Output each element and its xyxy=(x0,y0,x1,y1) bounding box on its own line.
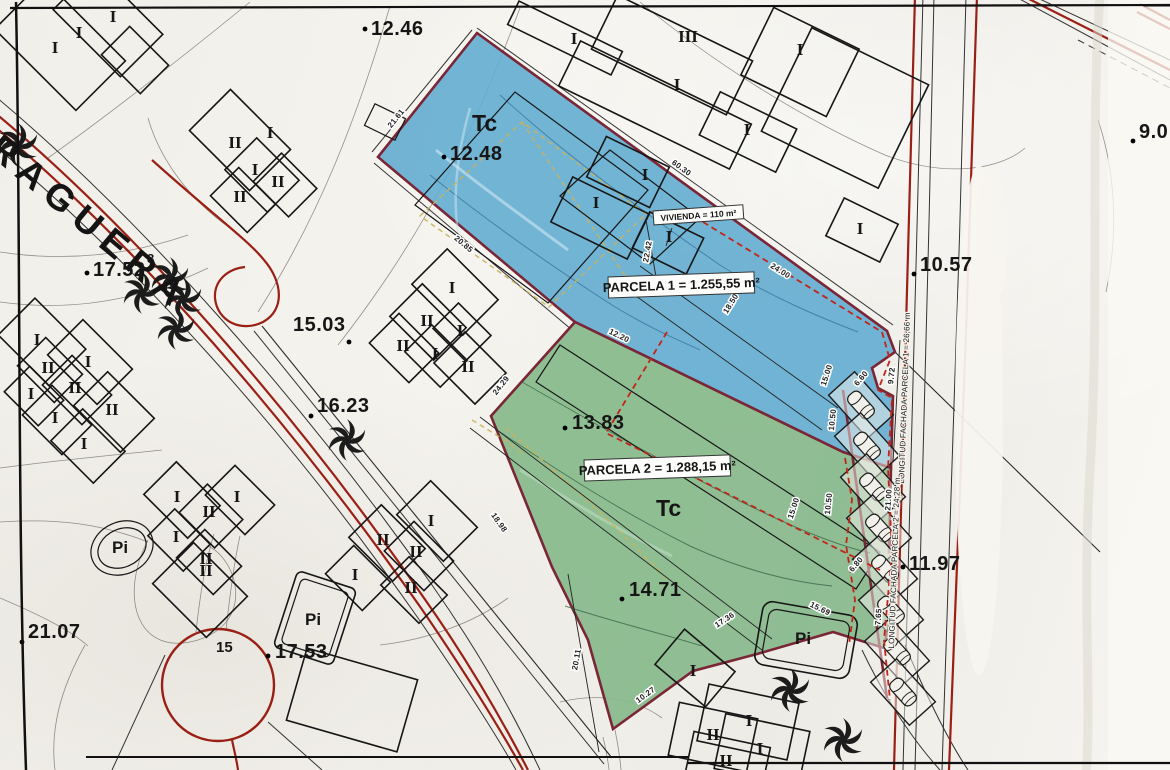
elevation-label: 17.52 xyxy=(93,259,146,281)
land-use-code: Tc xyxy=(656,495,681,521)
floors-label: I xyxy=(642,165,649,184)
building-cluster-mid xyxy=(369,249,506,404)
floors-label: II xyxy=(396,336,410,355)
spot-dot xyxy=(901,565,906,570)
floors-label: II xyxy=(271,172,285,191)
pool-code: Pi xyxy=(795,629,811,648)
floors-label: I xyxy=(234,487,241,506)
paper-crease-highlights xyxy=(955,0,1170,770)
floors-label: II xyxy=(409,542,423,561)
floors-label: II xyxy=(719,751,733,770)
dimension-label: 7.65 xyxy=(873,608,883,626)
spot-dot xyxy=(266,654,271,659)
floors-label: I xyxy=(52,408,59,427)
spot-dot xyxy=(85,271,90,276)
elevation-label: 17.53 xyxy=(275,641,328,663)
spot-dot xyxy=(309,414,314,419)
spot-dot xyxy=(563,426,568,431)
floors-label: II xyxy=(404,578,418,597)
pool-code: Pi xyxy=(112,538,128,557)
elevation-label: 11.97 xyxy=(909,553,960,575)
floors-label: II xyxy=(228,133,242,152)
floors-label: I xyxy=(52,38,59,57)
palm-tree-icon xyxy=(820,718,866,762)
floors-label: I xyxy=(85,352,92,371)
dimension-label: 9.72 xyxy=(886,367,897,385)
building-cluster-top-left xyxy=(0,0,169,110)
floors-label: II xyxy=(199,561,213,580)
floors-label: I xyxy=(593,193,600,212)
floors-label: II xyxy=(461,357,475,376)
floors-label: I xyxy=(252,160,259,179)
floors-label: III xyxy=(678,27,698,46)
site-plan-map: RAGUERA 12.46 12.48 17.52 8 15.03 16.23 … xyxy=(0,0,1170,770)
spot-dot xyxy=(1131,139,1136,144)
floors-label: I xyxy=(110,7,117,26)
floors-label: I xyxy=(757,739,764,758)
elevation-label: 12.48 xyxy=(450,143,503,165)
pool-code: Pi xyxy=(305,610,321,629)
elevation-label: 9.0 xyxy=(1139,121,1168,143)
floors-label: II xyxy=(376,530,390,549)
spot-dot xyxy=(347,340,352,345)
floors-label: II xyxy=(105,400,119,419)
floors-label: I xyxy=(28,384,35,403)
elevation-label: 13.83 xyxy=(572,412,625,434)
dimension-label: 18.98 xyxy=(489,511,509,534)
elevation-label: 10.57 xyxy=(920,254,973,276)
elevation-superscript: 8 xyxy=(147,251,154,266)
floors-label: II xyxy=(68,378,82,397)
parking-stall xyxy=(871,659,936,726)
floors-label: I xyxy=(571,29,578,48)
floors-label: I xyxy=(666,227,673,246)
floors-label: I xyxy=(267,123,274,142)
spot-dot xyxy=(363,27,368,32)
floors-label: I xyxy=(857,219,864,238)
floors-label: II xyxy=(41,358,55,377)
floors-label: I xyxy=(690,661,697,680)
floors-label: I xyxy=(34,330,41,349)
elevation-label: 16.23 xyxy=(317,395,370,417)
floors-label: I xyxy=(797,40,804,59)
floors-label: I xyxy=(81,434,88,453)
spot-dot xyxy=(620,597,625,602)
floors-label: II xyxy=(202,502,216,521)
palm-tree-icon xyxy=(767,668,813,712)
floors-label: I xyxy=(457,321,464,340)
floors-label: I xyxy=(173,527,180,546)
floors-label: II xyxy=(706,725,720,744)
scanned-site-plan: RAGUERA 12.46 12.48 17.52 8 15.03 16.23 … xyxy=(0,0,1170,770)
elevation-label: 12.46 xyxy=(371,18,424,40)
floors-label: I xyxy=(746,711,753,730)
spot-dot xyxy=(912,272,917,277)
floors-label: I xyxy=(174,487,181,506)
palm-tree-icon xyxy=(325,419,369,461)
spot-dot xyxy=(442,155,447,160)
floors-label: I xyxy=(76,23,83,42)
elevation-label: 14.71 xyxy=(629,579,682,601)
elevation-label: 21.07 xyxy=(28,621,81,643)
elevation-label: 15.03 xyxy=(293,314,346,336)
floors-label: II xyxy=(233,187,247,206)
floors-label: I xyxy=(432,344,439,363)
floors-label: I xyxy=(449,278,456,297)
street-name: RAGUERA xyxy=(0,127,199,319)
frontage-length-label: LONGITUD FACHADA PARCELA 1 = 26,66 m xyxy=(897,312,912,484)
road-number-label: 15 xyxy=(216,639,233,656)
floors-label: I xyxy=(674,75,681,94)
floors-label: I xyxy=(428,511,435,530)
land-use-code: Tc xyxy=(472,110,497,136)
dimension-label: 20.11 xyxy=(570,648,583,671)
floors-label: I xyxy=(744,120,751,139)
floors-label: II xyxy=(420,311,434,330)
floors-label: I xyxy=(352,565,359,584)
street-name-label: RAGUERA xyxy=(0,127,199,319)
